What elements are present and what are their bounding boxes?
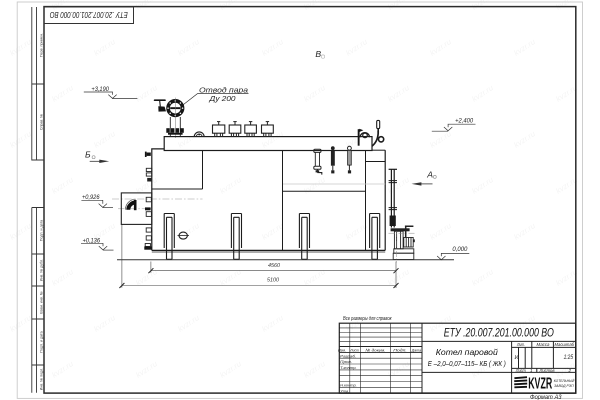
svg-text:Все размеры для справок: Все размеры для справок bbox=[343, 316, 392, 322]
svg-text:Взам. инв. №: Взам. инв. № bbox=[39, 291, 43, 313]
svg-text:ЕТУ .20.007.201.00.000 ВО: ЕТУ .20.007.201.00.000 ВО bbox=[50, 10, 128, 19]
svg-text:Лист: Лист bbox=[515, 368, 526, 373]
svg-text:Справ. №: Справ. № bbox=[39, 114, 43, 130]
svg-text:Масса: Масса bbox=[537, 342, 551, 347]
svg-text:2: 2 bbox=[568, 368, 572, 373]
svg-text:5100: 5100 bbox=[267, 278, 279, 284]
svg-text:Б: Б bbox=[85, 149, 91, 159]
svg-text:Подп. и дата: Подп. и дата bbox=[39, 220, 43, 241]
svg-text:Разраб.: Разраб. bbox=[340, 353, 356, 358]
svg-text:0,000: 0,000 bbox=[452, 246, 467, 253]
svg-text:Т.контр.: Т.контр. bbox=[340, 365, 357, 370]
svg-text:ЗАВОД РЭП: ЗАВОД РЭП bbox=[554, 383, 574, 388]
svg-text:Утв.: Утв. bbox=[340, 388, 349, 393]
svg-text:А: А bbox=[426, 170, 433, 180]
svg-text:Отвод пара: Отвод пара bbox=[199, 85, 249, 94]
svg-text:Подп.: Подп. bbox=[393, 347, 407, 352]
svg-text:Масштаб: Масштаб bbox=[555, 342, 575, 347]
svg-text:Инв. № подл.: Инв. № подл. bbox=[39, 368, 43, 390]
svg-text:Листов: Листов bbox=[539, 368, 556, 373]
svg-text:В: В bbox=[315, 49, 321, 59]
svg-text:4560: 4560 bbox=[268, 263, 280, 269]
svg-text:Формат А3: Формат А3 bbox=[530, 395, 562, 400]
svg-text:Лист: Лист bbox=[349, 347, 359, 352]
svg-text:Изм.: Изм. bbox=[338, 347, 346, 352]
svg-text:Н.контр.: Н.контр. bbox=[340, 383, 357, 388]
svg-text:Перв. примен.: Перв. примен. bbox=[39, 33, 43, 57]
svg-text:Ду 200: Ду 200 bbox=[208, 94, 236, 103]
svg-text:1:25: 1:25 bbox=[564, 354, 574, 361]
svg-text:Пров.: Пров. bbox=[340, 359, 352, 364]
svg-text:KVZR: KVZR bbox=[528, 375, 552, 392]
svg-text:Е –2,0–0,07–115– КБ ( ЖК ): Е –2,0–0,07–115– КБ ( ЖК ) bbox=[428, 359, 506, 368]
svg-text:Лит.: Лит. bbox=[516, 342, 525, 347]
svg-text:ЕТУ .20.007.201.00.000 ВО: ЕТУ .20.007.201.00.000 ВО bbox=[444, 326, 554, 340]
svg-text:Инв. № дубл.: Инв. № дубл. bbox=[39, 259, 43, 281]
svg-text:№ докум.: № докум. bbox=[366, 347, 386, 352]
svg-text:Дата: Дата bbox=[411, 347, 422, 352]
svg-text:Котел паровой: Котел паровой bbox=[436, 348, 499, 357]
svg-text:Подп. и дата: Подп. и дата bbox=[39, 331, 43, 352]
svg-text:+2,400: +2,400 bbox=[455, 117, 473, 124]
